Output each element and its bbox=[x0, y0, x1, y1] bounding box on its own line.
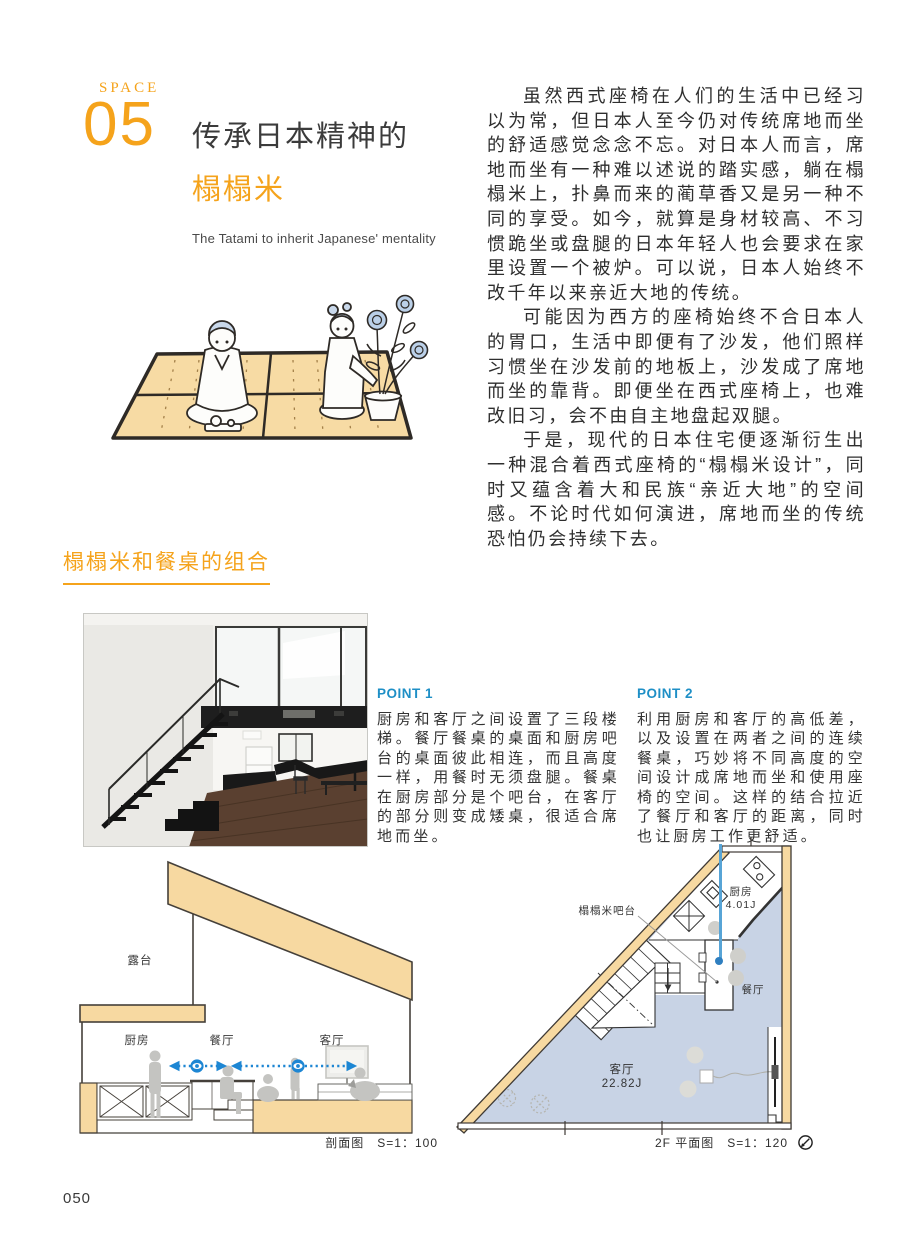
cross-section-diagram: 露台 厨房 餐厅 客厅 bbox=[60, 852, 445, 1137]
rear-window bbox=[279, 734, 312, 761]
section-caption: 剖面图 S=1：100 bbox=[60, 1134, 438, 1151]
plan-caption: 2F 平面图 S=1：120 bbox=[655, 1134, 788, 1151]
page-title-accent: 榻榻米 bbox=[192, 166, 285, 208]
interior-photo bbox=[83, 613, 368, 847]
plan-label-tatami-bar: 榻榻米吧台 bbox=[579, 904, 637, 917]
north-arrow-icon bbox=[797, 1134, 814, 1151]
sloped-roof bbox=[168, 862, 412, 1000]
floor-plan-diagram: 榻榻米吧台 厨房 4.01J 餐厅 客厅 22.82J bbox=[452, 832, 837, 1137]
point-1-label: POINT 1 bbox=[377, 684, 620, 704]
section-label-terrace: 露台 bbox=[128, 953, 153, 967]
loft-window bbox=[216, 627, 366, 707]
space-number: 05 bbox=[83, 94, 156, 156]
plan-kitchen-area: 4.01J bbox=[726, 899, 757, 911]
top-wall bbox=[722, 846, 789, 852]
page-title: 传承日本精神的 bbox=[192, 113, 409, 155]
intro-text-column: 虽然西式座椅在人们的生活中已经习以为常，但日本人至今仍对传统席地而坐的舒适感觉念… bbox=[487, 84, 866, 551]
page-number: 050 bbox=[63, 1190, 91, 1207]
intro-paragraph-3: 于是，现代的日本住宅便逐渐衍生出一种混合着西式座椅的“榻榻米设计”，同时又蕴含着… bbox=[487, 428, 866, 551]
section-label-dining: 餐厅 bbox=[210, 1033, 235, 1047]
point2-leader-dot bbox=[715, 957, 723, 965]
point-1-block: POINT 1 厨房和客厅之间设置了三段楼梯。餐厅餐桌的桌面和厨房吧台的桌面彼此… bbox=[377, 684, 620, 846]
living-floor bbox=[253, 1100, 412, 1133]
plan-label-dining: 餐厅 bbox=[742, 983, 765, 996]
point2-leader-line bbox=[719, 844, 722, 960]
point-2-block: POINT 2 利用厨房和客厅的高低差，以及设置在两者之间的连续餐桌，巧妙将不同… bbox=[637, 684, 866, 846]
plan-living-area: 22.82J bbox=[602, 1078, 643, 1090]
air-conditioner bbox=[243, 731, 261, 739]
page-subtitle-english: The Tatami to inherit Japanese' mentalit… bbox=[192, 231, 436, 246]
plan-label-living: 客厅 bbox=[610, 1062, 635, 1076]
plan-caption-row: 2F 平面图 S=1：120 bbox=[452, 1134, 814, 1151]
kitchen-pit bbox=[97, 1083, 192, 1120]
plan-label-kitchen: 厨房 bbox=[730, 885, 753, 898]
bottom-wall bbox=[458, 1123, 791, 1129]
right-wall bbox=[782, 846, 791, 1129]
intro-paragraph-1: 虽然西式座椅在人们的生活中已经习以为常，但日本人至今仍对传统席地而坐的舒适感觉念… bbox=[487, 84, 866, 305]
point-1-text: 厨房和客厅之间设置了三段楼梯。餐厅餐桌的桌面和厨房吧台的桌面彼此相连，而且高度一… bbox=[377, 710, 620, 847]
tatami-illustration bbox=[95, 276, 445, 461]
point-2-text: 利用厨房和客厅的高低差，以及设置在两者之间的连续餐桌，巧妙将不同高度的空间设计成… bbox=[637, 710, 866, 847]
intro-paragraph-2: 可能因为西方的座椅始终不合日本人的胃口，生活中即便有了沙发，他们照样习惯坐在沙发… bbox=[487, 305, 866, 428]
section-heading: 榻榻米和餐桌的组合 bbox=[63, 546, 270, 585]
canopy bbox=[80, 1005, 205, 1022]
section-label-kitchen: 厨房 bbox=[125, 1034, 150, 1047]
book-page: SPACE 05 传承日本精神的 榻榻米 The Tatami to inher… bbox=[0, 0, 900, 1253]
stair-landing bbox=[655, 963, 680, 993]
section-label-living: 客厅 bbox=[320, 1033, 345, 1047]
point-2-label: POINT 2 bbox=[637, 684, 866, 704]
